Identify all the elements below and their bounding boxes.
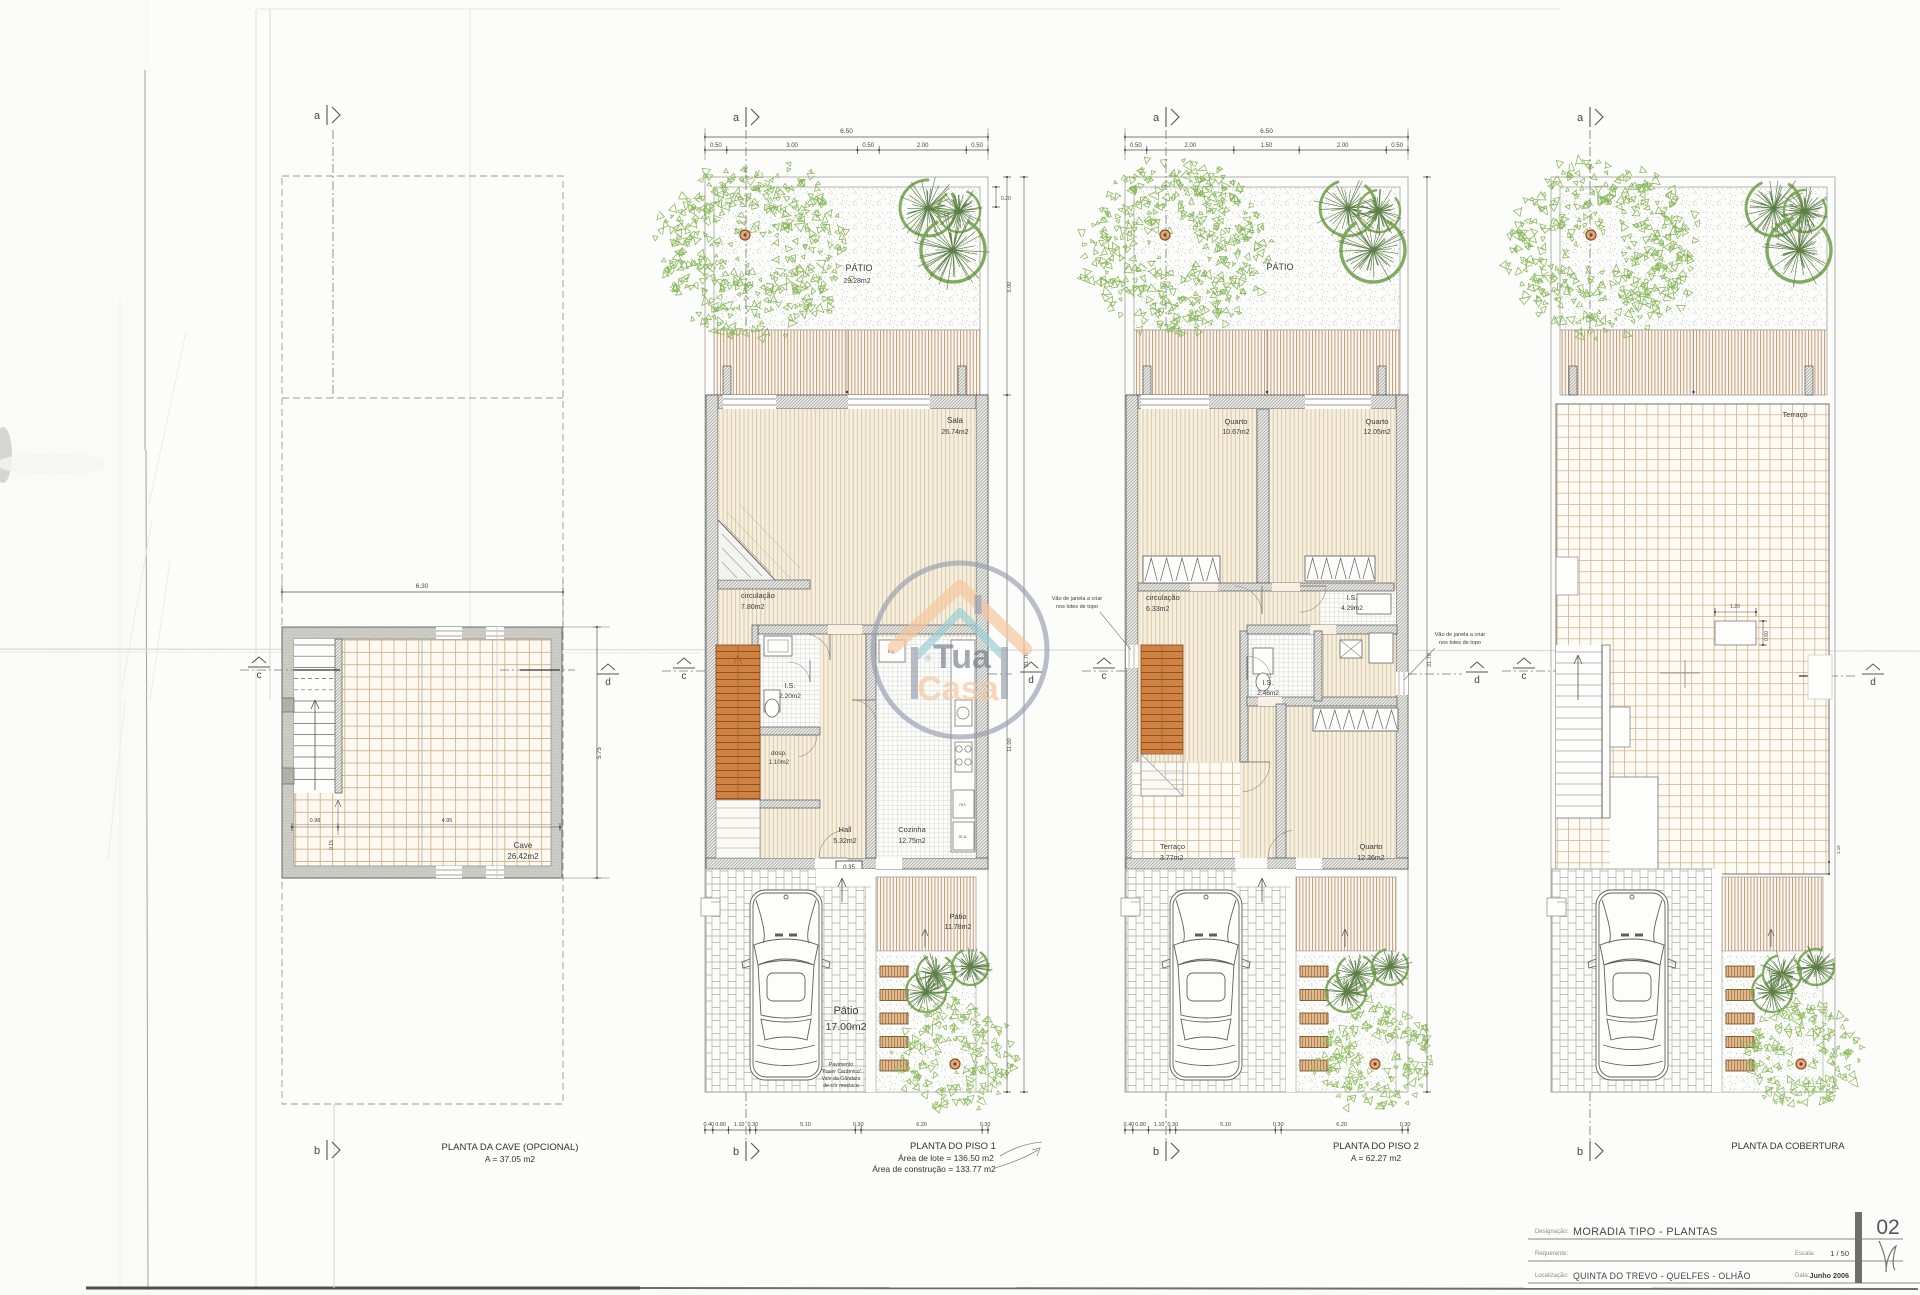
svg-text:nos lotes de topo: nos lotes de topo (1056, 604, 1098, 610)
svg-text:m.u.: m.u. (959, 834, 968, 839)
svg-text:1.10: 1.10 (734, 1122, 745, 1128)
svg-text:Casa: Casa (917, 670, 999, 708)
svg-text:Sala: Sala (947, 416, 964, 425)
svg-text:Área de lote = 136.50 m2: Área de lote = 136.50 m2 (898, 1153, 994, 1163)
svg-text:b: b (1153, 1146, 1159, 1158)
svg-text:0.50: 0.50 (1130, 143, 1142, 149)
svg-text:3.00: 3.00 (786, 143, 798, 149)
svg-text:®: ® (925, 653, 932, 663)
svg-text:a: a (314, 110, 321, 122)
svg-text:b: b (1577, 1146, 1583, 1158)
svg-text:Pátio: Pátio (949, 912, 966, 921)
svg-text:0.30: 0.30 (980, 1122, 991, 1128)
svg-text:6.20: 6.20 (1336, 1122, 1347, 1128)
svg-text:2.46m2: 2.46m2 (1257, 690, 1279, 697)
svg-text:I.S.: I.S. (1263, 680, 1274, 687)
svg-text:1.50: 1.50 (1261, 143, 1273, 149)
svg-text:I.S.: I.S. (785, 683, 796, 690)
svg-text:10.67m2: 10.67m2 (1222, 429, 1249, 436)
svg-text:Quarto: Quarto (1366, 417, 1389, 426)
svg-text:Escala:: Escala: (1795, 1251, 1815, 1257)
svg-text:Cave: Cave (514, 841, 533, 850)
svg-text:0.40: 0.40 (1124, 1122, 1135, 1128)
svg-text:26.42m2: 26.42m2 (507, 852, 539, 861)
svg-text:d: d (1028, 675, 1034, 686)
svg-text:12.36m2: 12.36m2 (1357, 855, 1384, 862)
svg-text:PLANTA DA CAVE (OPCIONAL): PLANTA DA CAVE (OPCIONAL) (442, 1142, 579, 1153)
svg-text:1.15: 1.15 (1836, 845, 1841, 854)
svg-text:I.S.: I.S. (1347, 595, 1358, 602)
svg-text:0.30: 0.30 (1273, 1122, 1284, 1128)
svg-text:6.50: 6.50 (1260, 128, 1273, 135)
svg-text:circulação: circulação (1146, 593, 1180, 602)
svg-text:1.10: 1.10 (1154, 1122, 1165, 1128)
svg-text:PÁTIO: PÁTIO (845, 263, 872, 273)
svg-text:Terraço: Terraço (1160, 842, 1185, 851)
svg-text:0.40: 0.40 (704, 1122, 715, 1128)
svg-text:PÁTIO: PÁTIO (1266, 262, 1293, 272)
svg-text:0.30: 0.30 (747, 1122, 758, 1128)
svg-text:6.50: 6.50 (840, 128, 853, 135)
svg-text:Pátio: Pátio (833, 1005, 858, 1017)
svg-text:5.32m2: 5.32m2 (833, 838, 856, 845)
svg-text:2.00: 2.00 (1337, 143, 1349, 149)
svg-text:Requerente:: Requerente: (1535, 1251, 1568, 1257)
svg-text:1.10m2: 1.10m2 (769, 760, 790, 766)
svg-text:Junho 2006: Junho 2006 (1809, 1271, 1849, 1280)
svg-text:0.50: 0.50 (862, 143, 874, 149)
svg-text:c: c (682, 671, 687, 682)
svg-text:PLANTA DO PISO 1: PLANTA DO PISO 1 (910, 1141, 996, 1152)
svg-text:de côr mostaca: de côr mostaca (823, 1083, 859, 1089)
svg-text:26.74m2: 26.74m2 (941, 429, 968, 436)
svg-text:a: a (1577, 112, 1584, 124)
svg-text:0.15: 0.15 (329, 840, 335, 850)
svg-text:02: 02 (1876, 1216, 1899, 1239)
svg-text:Área de construção = 133.77 m2: Área de construção = 133.77 m2 (872, 1164, 996, 1174)
svg-text:17.00m2: 17.00m2 (826, 1021, 867, 1033)
svg-text:2.20m2: 2.20m2 (779, 693, 801, 700)
svg-text:0.30: 0.30 (853, 1122, 864, 1128)
svg-text:1.20: 1.20 (1730, 604, 1740, 610)
svg-text:dosp.: dosp. (771, 750, 787, 757)
svg-text:0.30: 0.30 (1167, 1122, 1178, 1128)
svg-text:12.05m2: 12.05m2 (1363, 429, 1390, 436)
svg-text:circulação: circulação (741, 591, 775, 600)
svg-text:7.80m2: 7.80m2 (741, 604, 764, 611)
svg-text:0.30: 0.30 (1400, 1122, 1411, 1128)
svg-text:QUINTA DO TREVO - QUELFES - O: QUINTA DO TREVO - QUELFES - OLHÃO (1573, 1271, 1751, 1281)
svg-text:11.00: 11.00 (1007, 738, 1013, 751)
svg-text:11.78m2: 11.78m2 (945, 924, 972, 931)
svg-text:MORADIA TIPO - PLANTAS: MORADIA TIPO - PLANTAS (1573, 1226, 1718, 1238)
svg-text:c: c (257, 670, 262, 681)
svg-text:Data:: Data: (1795, 1273, 1810, 1279)
svg-text:6.33m2: 6.33m2 (1146, 606, 1169, 613)
svg-text:d: d (1474, 675, 1480, 686)
svg-text:d: d (605, 677, 611, 688)
svg-text:0.20: 0.20 (1001, 196, 1011, 202)
svg-text:0.50: 0.50 (971, 143, 983, 149)
svg-text:Pavimento: Pavimento (829, 1062, 854, 1068)
svg-text:c: c (1102, 671, 1107, 682)
svg-text:0.98: 0.98 (310, 818, 321, 824)
svg-text:Localização:: Localização: (1535, 1273, 1569, 1279)
svg-text:c: c (1522, 671, 1527, 682)
svg-text:Cozinha: Cozinha (898, 825, 926, 834)
svg-text:a: a (733, 112, 740, 124)
svg-text:"Paver Cerâmico": "Paver Cerâmico" (821, 1069, 862, 1075)
svg-text:nos lotes de topo: nos lotes de topo (1439, 640, 1481, 646)
svg-text:1 / 50: 1 / 50 (1830, 1249, 1849, 1258)
svg-text:29.28m2: 29.28m2 (843, 278, 870, 285)
svg-text:d: d (1870, 677, 1876, 688)
svg-text:a: a (1153, 112, 1160, 124)
svg-text:Vão de janela a criar: Vão de janela a criar (1435, 632, 1486, 638)
svg-text:Vale da Gândara: Vale da Gândara (822, 1076, 861, 1082)
svg-text:b: b (314, 1145, 320, 1157)
svg-text:PLANTA DA COBERTURA: PLANTA DA COBERTURA (1731, 1141, 1845, 1152)
svg-text:b: b (733, 1146, 739, 1158)
svg-text:0.60: 0.60 (1764, 631, 1770, 641)
svg-text:4.29m2: 4.29m2 (1341, 605, 1363, 612)
svg-text:2.00: 2.00 (917, 143, 929, 149)
svg-text:12.75m2: 12.75m2 (898, 838, 925, 845)
svg-text:m.l.: m.l. (959, 802, 966, 807)
svg-text:2.00: 2.00 (1184, 143, 1196, 149)
svg-text:Terraço: Terraço (1782, 410, 1807, 419)
svg-text:6.20: 6.20 (916, 1122, 927, 1128)
svg-text:A = 37.05 m2: A = 37.05 m2 (485, 1154, 536, 1164)
svg-text:5.00: 5.00 (1007, 282, 1013, 293)
svg-text:0.80: 0.80 (715, 1122, 726, 1128)
svg-text:Quarto: Quarto (1225, 417, 1248, 426)
svg-text:Quarto: Quarto (1360, 842, 1383, 851)
svg-text:5.10: 5.10 (1220, 1122, 1231, 1128)
svg-text:Designação:: Designação: (1535, 1229, 1569, 1235)
svg-text:6.30: 6.30 (416, 583, 429, 590)
svg-text:0.80: 0.80 (1135, 1122, 1146, 1128)
svg-text:4.95: 4.95 (442, 818, 453, 824)
svg-text:Vão de janela a criar: Vão de janela a criar (1052, 596, 1103, 602)
svg-text:0.50: 0.50 (1391, 143, 1403, 149)
svg-text:Hall: Hall (839, 825, 852, 834)
svg-text:0.50: 0.50 (710, 143, 722, 149)
svg-text:A = 62.27 m2: A = 62.27 m2 (1351, 1153, 1402, 1163)
svg-text:5.75: 5.75 (597, 747, 603, 759)
svg-text:PLANTA DO PISO 2: PLANTA DO PISO 2 (1333, 1141, 1419, 1152)
svg-text:3.77m2: 3.77m2 (1160, 855, 1183, 862)
svg-text:5.10: 5.10 (800, 1122, 811, 1128)
